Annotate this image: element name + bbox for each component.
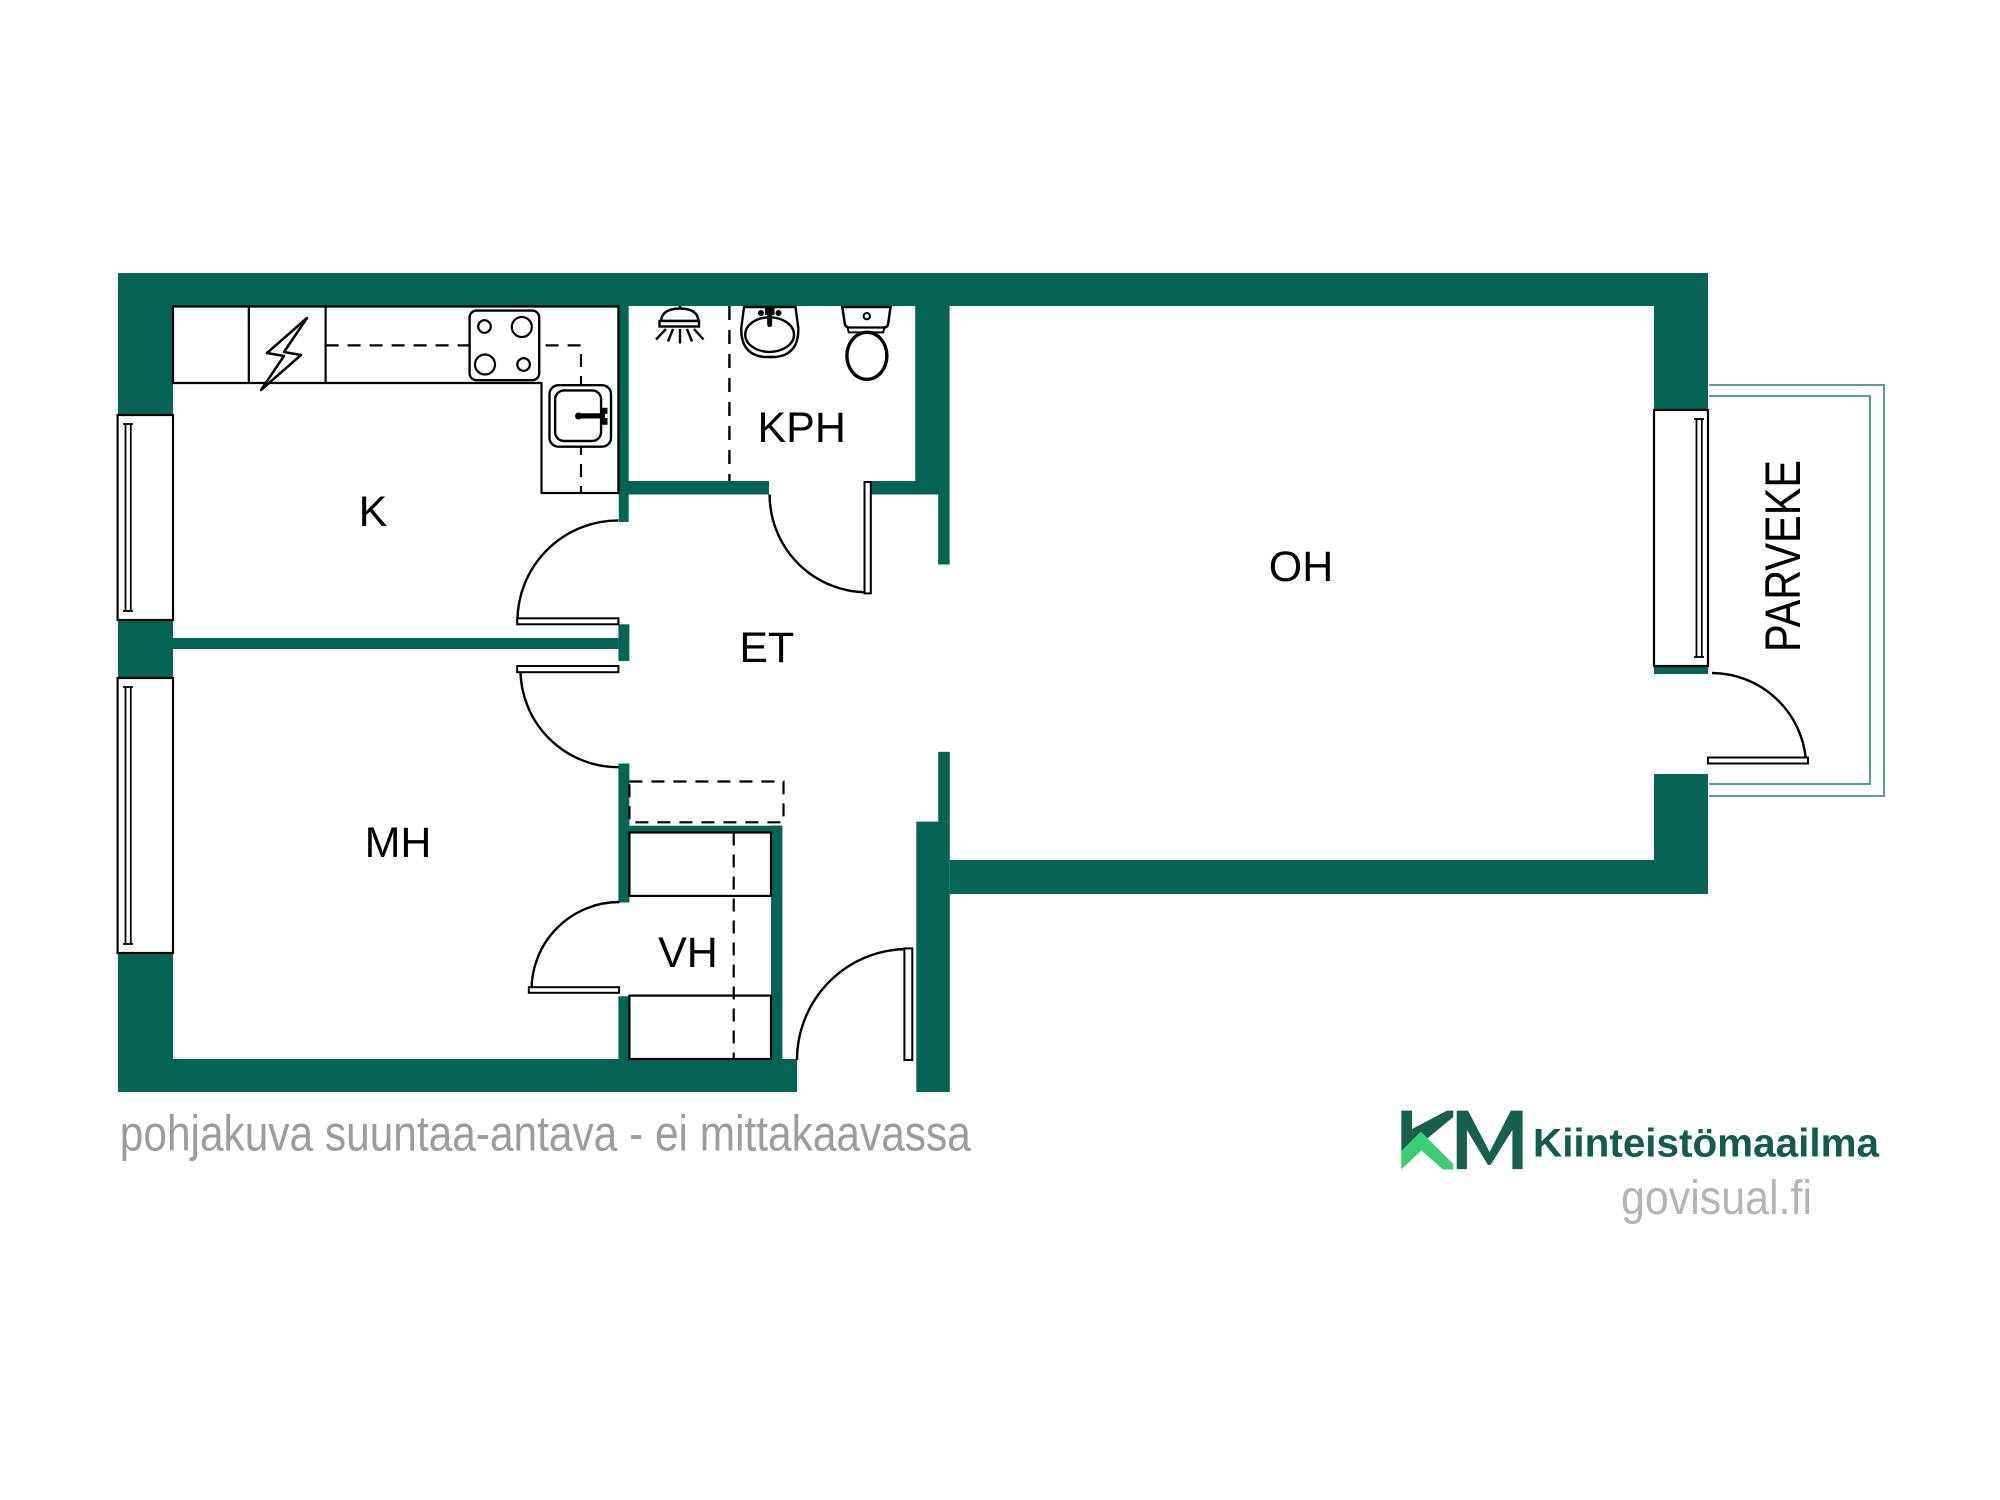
svg-text:VH: VH xyxy=(658,929,718,977)
svg-text:KPH: KPH xyxy=(757,404,845,452)
svg-text:OH: OH xyxy=(1269,543,1334,591)
svg-text:pohjakuva suuntaa-antava - ei: pohjakuva suuntaa-antava - ei mittakaava… xyxy=(120,1106,971,1162)
svg-text:ET: ET xyxy=(739,624,794,672)
svg-text:K: K xyxy=(359,488,388,536)
svg-text:govisual.fi: govisual.fi xyxy=(1621,1172,1812,1225)
svg-text:MH: MH xyxy=(365,819,432,867)
svg-text:Kiinteistömaailma: Kiinteistömaailma xyxy=(1533,1121,1880,1165)
svg-text:PARVEKE: PARVEKE xyxy=(1755,460,1811,652)
